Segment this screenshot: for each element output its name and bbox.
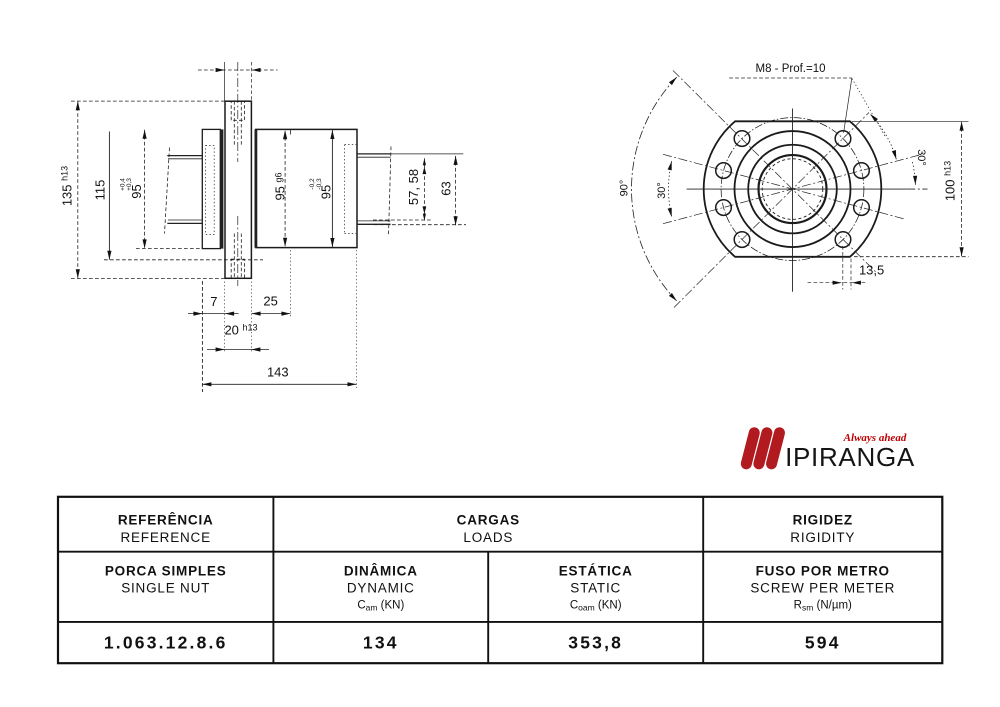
svg-text:90°: 90° bbox=[619, 180, 631, 197]
svg-text:RIGIDITY: RIGIDITY bbox=[790, 530, 855, 545]
svg-text:134: 134 bbox=[363, 633, 399, 653]
svg-text:+0,4+0,3: +0,4+0,3 bbox=[120, 178, 134, 191]
svg-text:13,5: 13,5 bbox=[859, 263, 884, 278]
svg-text:LOADS: LOADS bbox=[463, 530, 513, 545]
svg-text:30°: 30° bbox=[915, 149, 927, 166]
svg-text:1.063.12.8.6: 1.063.12.8.6 bbox=[104, 633, 228, 653]
svg-text:135 h13: 135 h13 bbox=[60, 166, 75, 206]
svg-text:IPIRANGA: IPIRANGA bbox=[785, 442, 915, 472]
svg-text:353,8: 353,8 bbox=[568, 633, 623, 653]
svg-text:100 h13: 100 h13 bbox=[943, 161, 958, 201]
svg-text:DINÂMICA: DINÂMICA bbox=[344, 564, 418, 579]
svg-text:REFERENCE: REFERENCE bbox=[120, 530, 210, 545]
svg-text:Cam (KN): Cam (KN) bbox=[357, 600, 404, 613]
svg-text:SINGLE NUT: SINGLE NUT bbox=[121, 581, 210, 596]
svg-text:7: 7 bbox=[210, 294, 217, 309]
svg-text:63: 63 bbox=[439, 181, 454, 195]
svg-text:REFERÊNCIA: REFERÊNCIA bbox=[118, 513, 214, 528]
svg-text:20 h13: 20 h13 bbox=[224, 323, 257, 338]
svg-text:RIGIDEZ: RIGIDEZ bbox=[793, 513, 853, 528]
svg-text:STATIC: STATIC bbox=[570, 581, 621, 596]
svg-text:Rsm (N/µm): Rsm (N/µm) bbox=[794, 600, 852, 613]
svg-text:57, 58: 57, 58 bbox=[406, 169, 421, 205]
svg-text:FUSO POR METRO: FUSO POR METRO bbox=[756, 564, 890, 579]
svg-text:SCREW PER METER: SCREW PER METER bbox=[750, 581, 895, 596]
svg-text:594: 594 bbox=[805, 633, 841, 653]
svg-text:-0,2-0,3: -0,2-0,3 bbox=[309, 178, 323, 190]
svg-text:ESTÁTICA: ESTÁTICA bbox=[559, 564, 633, 579]
svg-text:25: 25 bbox=[263, 294, 277, 309]
svg-text:DYNAMIC: DYNAMIC bbox=[347, 581, 415, 596]
svg-text:143: 143 bbox=[267, 364, 289, 379]
svg-text:M8 - Prof.=10: M8 - Prof.=10 bbox=[756, 63, 826, 75]
svg-text:115: 115 bbox=[93, 180, 108, 201]
svg-text:30°: 30° bbox=[656, 182, 668, 199]
svg-text:PORCA SIMPLES: PORCA SIMPLES bbox=[105, 564, 227, 579]
svg-text:CARGAS: CARGAS bbox=[457, 513, 520, 528]
svg-text:Coam (KN): Coam (KN) bbox=[570, 600, 622, 613]
